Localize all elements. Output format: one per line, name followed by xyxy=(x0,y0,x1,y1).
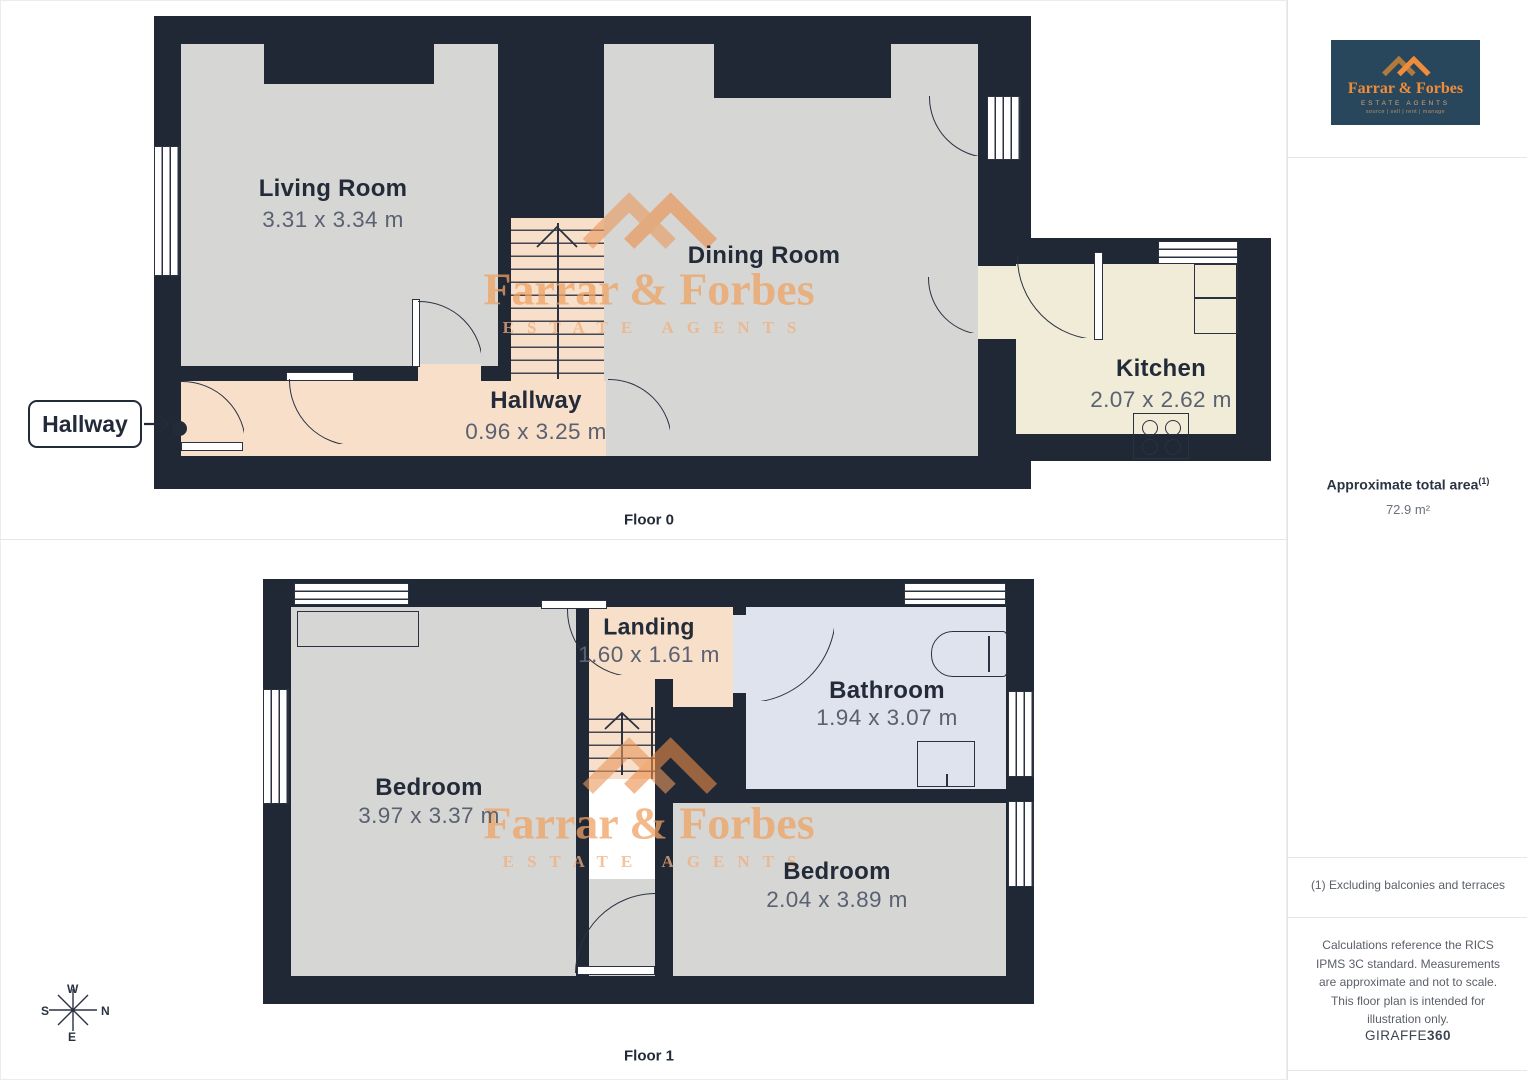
total-area-block: Approximate total area(1) 72.9 m² xyxy=(1298,476,1518,517)
sidebar-divider xyxy=(1288,157,1527,158)
hallway-dims: 0.96 x 3.25 m xyxy=(465,419,607,445)
watermark-subtitle: ESTATE AGENTS xyxy=(503,318,810,338)
hallway-door-arc xyxy=(289,379,354,444)
kitchen-unit-shelf-line xyxy=(1194,297,1238,299)
bedroom-left-top-window xyxy=(294,583,409,605)
watermark-roof-icon xyxy=(574,724,724,796)
sidebar-divider xyxy=(1288,857,1527,858)
living-room-door-arc xyxy=(418,301,481,364)
bedroom-left-label: Bedroom xyxy=(375,774,482,802)
bathroom-top-window xyxy=(904,583,1006,605)
hallway-callout-label: Hallway xyxy=(42,411,128,438)
kitchen-door-arc xyxy=(1017,256,1099,338)
bathroom-label: Bathroom xyxy=(829,677,945,705)
hob-ring-icon xyxy=(1142,420,1158,436)
kitchen-label: Kitchen xyxy=(1116,355,1206,383)
hallway-dining-door-arc xyxy=(608,379,670,441)
sidebar-divider xyxy=(1288,917,1527,918)
bedroom-right-label: Bedroom xyxy=(783,858,890,886)
landing-label: Landing xyxy=(603,614,695,641)
agency-tagline: source | sell | rent | manage xyxy=(1366,109,1445,115)
hob-ring-icon xyxy=(1165,439,1181,455)
kitchen-window xyxy=(1158,241,1238,264)
vendor-brand: GIRAFFE360 xyxy=(1298,1028,1518,1043)
living-room-door-gap xyxy=(418,364,481,381)
compass-south: S xyxy=(41,1004,49,1018)
landing-bathroom-door-arc xyxy=(746,613,834,701)
watermark-brand: Farrar & Forbes xyxy=(483,797,814,850)
kitchen-hob xyxy=(1133,413,1189,459)
floorplan-page: { "logo": { "brand": "Farrar & Forbes", … xyxy=(0,0,1527,1080)
bedroom-left-wardrobe xyxy=(297,611,419,647)
bathroom-shower-fixture xyxy=(917,741,975,787)
bathroom-bath-fixture xyxy=(931,631,1007,677)
hallway-label: Hallway xyxy=(490,387,581,415)
landing-bedroom-door-leaf xyxy=(541,600,607,609)
bedroom-right-window xyxy=(1008,801,1034,887)
living-room-chimney-recess xyxy=(264,44,434,84)
floor-panel-divider xyxy=(1,539,1288,540)
bathroom-dims: 1.94 x 3.07 m xyxy=(816,705,958,731)
agency-brand-name: Farrar & Forbes xyxy=(1348,80,1463,98)
info-sidebar: Farrar & Forbes ESTATE AGENTS source | s… xyxy=(1287,0,1527,1080)
hob-ring-icon xyxy=(1142,439,1158,455)
compass-west: W xyxy=(67,982,78,996)
bedroom-left-window xyxy=(263,689,289,804)
front-door-arc xyxy=(181,381,244,444)
bathroom-window xyxy=(1008,691,1034,777)
hob-ring-icon xyxy=(1165,420,1181,436)
bath-fixture-line xyxy=(988,636,990,672)
area-footnote: (1) Excluding balconies and terraces xyxy=(1298,878,1518,892)
disclaimer-text: Calculations reference the RICS IPMS 3C … xyxy=(1308,936,1508,1029)
shower-fixture-line xyxy=(946,774,948,786)
bathroom-doorway-gap xyxy=(733,615,746,693)
agency-subtitle: ESTATE AGENTS xyxy=(1361,100,1450,107)
compass-north: N xyxy=(101,1004,110,1018)
watermark-subtitle: ESTATE AGENTS xyxy=(503,852,810,872)
living-room-label: Living Room xyxy=(259,175,408,203)
footnote-marker: (1) xyxy=(1478,476,1489,486)
dining-room-recess xyxy=(714,44,891,98)
bedroom-left-dims: 3.97 x 3.37 m xyxy=(358,803,500,829)
floor0-label: Floor 0 xyxy=(624,512,674,529)
dining-kitchen-door-arc xyxy=(928,277,984,333)
callout-target-dot xyxy=(172,421,187,436)
kitchen-dims: 2.07 x 2.62 m xyxy=(1090,387,1232,413)
bedroom-right-dims: 2.04 x 3.89 m xyxy=(766,887,908,913)
sidebar-divider xyxy=(1288,1070,1527,1071)
agency-roof-icon xyxy=(1378,51,1434,77)
hallway-callout-box: Hallway xyxy=(28,400,142,448)
dining-room-exterior-door-arc xyxy=(929,96,989,156)
agency-logo: Farrar & Forbes ESTATE AGENTS source | s… xyxy=(1331,40,1480,125)
watermark-roof-icon xyxy=(574,179,724,251)
vendor-number: 360 xyxy=(1427,1028,1451,1043)
watermark-brand: Farrar & Forbes xyxy=(483,263,814,316)
kitchen-unit xyxy=(1194,264,1238,334)
total-area-label: Approximate total area(1) xyxy=(1298,476,1518,493)
plan-area: Farrar & Forbes ESTATE AGENTS Living Roo… xyxy=(0,0,1287,1080)
dining-room-label: Dining Room xyxy=(688,242,841,270)
landing-dims: 1.60 x 1.61 m xyxy=(578,642,720,668)
bedroom-left-door-arc xyxy=(575,893,655,973)
vendor-name: GIRAFFE xyxy=(1365,1028,1427,1043)
compass-east: E xyxy=(68,1030,76,1044)
living-room-dims: 3.31 x 3.34 m xyxy=(262,207,404,233)
floor1-label: Floor 1 xyxy=(624,1048,674,1065)
dining-room-exterior-door xyxy=(987,96,1021,160)
total-area-value: 72.9 m² xyxy=(1298,502,1518,517)
living-room-window xyxy=(154,146,180,276)
